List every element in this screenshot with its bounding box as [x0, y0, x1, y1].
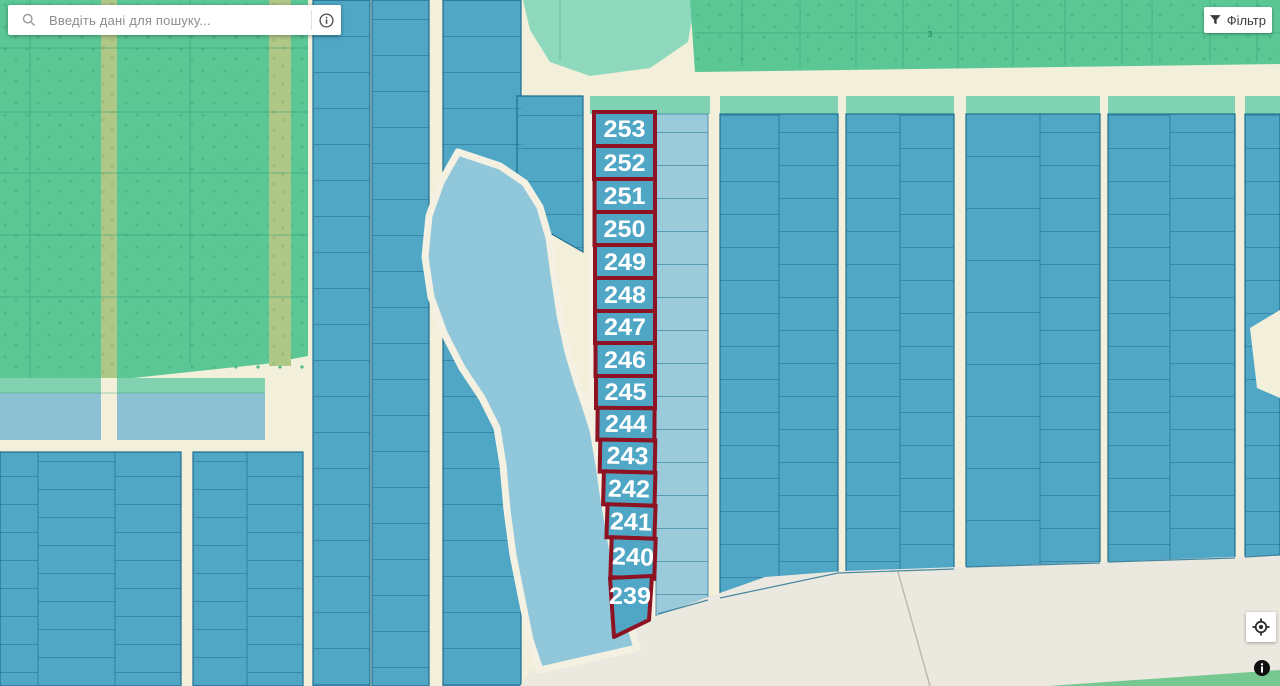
svg-text:253: 253 — [604, 116, 646, 143]
info-circle-outline-icon — [319, 13, 334, 28]
locate-button[interactable] — [1246, 612, 1276, 642]
search-bar[interactable]: Введіть дані для пошуку... — [8, 5, 341, 35]
parcel-245[interactable]: 245 — [596, 376, 655, 408]
crosshair-target-icon — [1252, 618, 1270, 636]
parcel-244[interactable]: 244 — [597, 408, 654, 440]
funnel-filter-icon — [1210, 15, 1221, 25]
map-stage: 3 — [0, 0, 1280, 686]
parcel-248[interactable]: 248 — [595, 278, 655, 311]
magnifier-icon — [22, 13, 36, 27]
teal-header-strips — [590, 96, 1280, 114]
svg-text:241: 241 — [609, 508, 652, 536]
svg-text:239: 239 — [609, 583, 651, 610]
parcel-246[interactable]: 246 — [596, 343, 656, 376]
parcel-243[interactable]: 243 — [600, 440, 656, 473]
parcel-250[interactable]: 250 — [595, 212, 656, 245]
green-field-block — [0, 0, 308, 392]
parcel-249[interactable]: 249 — [595, 245, 655, 278]
svg-text:249: 249 — [604, 249, 646, 276]
svg-text:251: 251 — [604, 183, 646, 210]
svg-text:243: 243 — [606, 443, 648, 471]
info-filled-icon — [1258, 663, 1266, 673]
parcel-242[interactable]: 242 — [603, 471, 655, 505]
canal-band — [0, 378, 265, 440]
search-input-placeholder[interactable]: Введіть дані для пошуку... — [49, 13, 311, 28]
svg-text:244: 244 — [605, 411, 648, 438]
svg-text:242: 242 — [608, 475, 651, 503]
filter-button-label: Фільтр — [1227, 13, 1266, 28]
search-info-button[interactable] — [312, 5, 341, 35]
map-canvas[interactable]: 3 — [0, 0, 1280, 686]
parcel-251[interactable]: 251 — [595, 179, 656, 212]
parcel-lines-bottom-left — [0, 452, 303, 686]
svg-text:247: 247 — [604, 314, 646, 341]
green-band-top: 3 — [690, 0, 1280, 72]
svg-text:246: 246 — [604, 347, 646, 374]
parcel-247[interactable]: 247 — [595, 311, 655, 343]
svg-text:240: 240 — [612, 543, 655, 571]
attribution-info-button[interactable] — [1254, 660, 1270, 676]
svg-text:252: 252 — [604, 150, 646, 177]
parcel-253[interactable]: 253 — [594, 112, 655, 146]
svg-text:250: 250 — [604, 216, 646, 243]
parcel-240[interactable]: 240 — [610, 537, 655, 579]
tiny-parcel-number: 3 — [928, 30, 933, 39]
svg-text:248: 248 — [604, 282, 646, 309]
svg-text:245: 245 — [605, 379, 647, 406]
parcel-columns-right — [588, 114, 1280, 618]
parcel-241[interactable]: 241 — [606, 504, 655, 539]
parcel-252[interactable]: 252 — [594, 146, 655, 179]
filter-button[interactable]: Фільтр — [1204, 7, 1272, 33]
